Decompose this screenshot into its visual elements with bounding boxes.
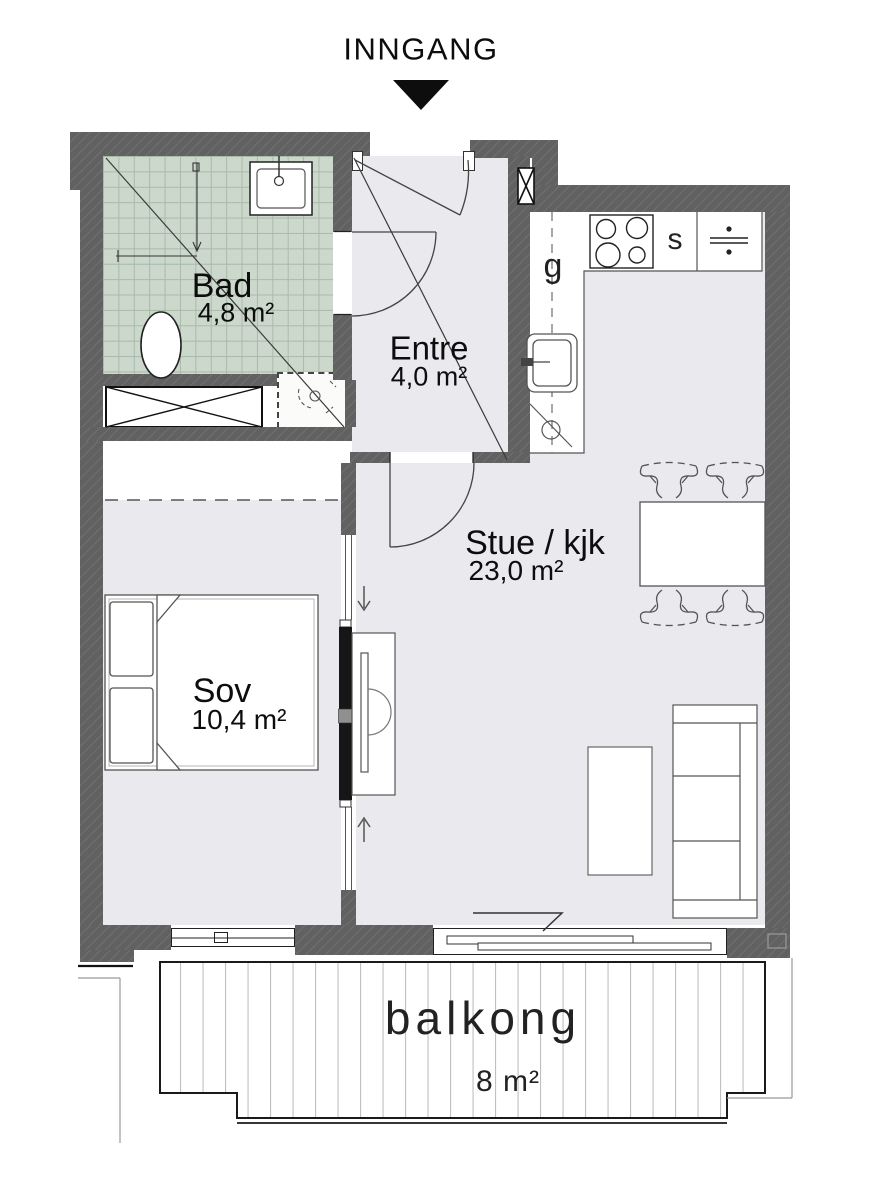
room-area-balkong: 8 m²: [476, 1067, 540, 1097]
room-area-stue: 23,0 m²: [469, 557, 564, 585]
fridge-icon: [710, 227, 748, 254]
coffee-table-icon: [588, 747, 652, 875]
entrance-door-swing-icon: [355, 160, 469, 215]
room-label-entre: Entre: [390, 332, 469, 365]
bathroom-sink-icon: [250, 156, 312, 215]
stove-icon: [590, 215, 653, 268]
pillow: [110, 602, 153, 676]
dishwasher-icon: [530, 404, 572, 447]
room-label-balkong: balkong: [385, 995, 581, 1041]
balcony-door-slide-arrow: [473, 913, 562, 931]
kitchen-cabinet-label: g: [544, 249, 563, 283]
entre-diagonal-line: [354, 158, 507, 460]
pillow: [110, 688, 153, 763]
room-area-sov: 10,4 m²: [192, 706, 287, 734]
dining-table-icon: [640, 502, 765, 586]
sofa-icon: [673, 705, 757, 918]
room-area-entre: 4,0 m²: [391, 364, 468, 391]
kitchen-group: [518, 168, 762, 453]
kitchen-sink-icon: [521, 334, 577, 392]
wardrobe-cross: [106, 387, 262, 427]
room-area-bad: 4,8 m²: [198, 300, 275, 327]
sliding-panel-2: [339, 723, 352, 800]
kitchen-stove-label: s: [668, 225, 683, 255]
sliding-panel-1: [339, 627, 352, 709]
toilet-icon: [141, 312, 181, 378]
vent-shaft-icon: [518, 168, 534, 204]
bad-door-swing-icon: [334, 232, 436, 317]
room-label-sov: Sov: [193, 674, 252, 708]
floor-plan: INNGANG: [0, 0, 893, 1200]
stue-door-swing-icon: [390, 452, 474, 547]
balcony-door-panels: [447, 936, 711, 950]
bad-fall-lines: [116, 163, 201, 262]
tv-bench-icon: [352, 633, 395, 795]
